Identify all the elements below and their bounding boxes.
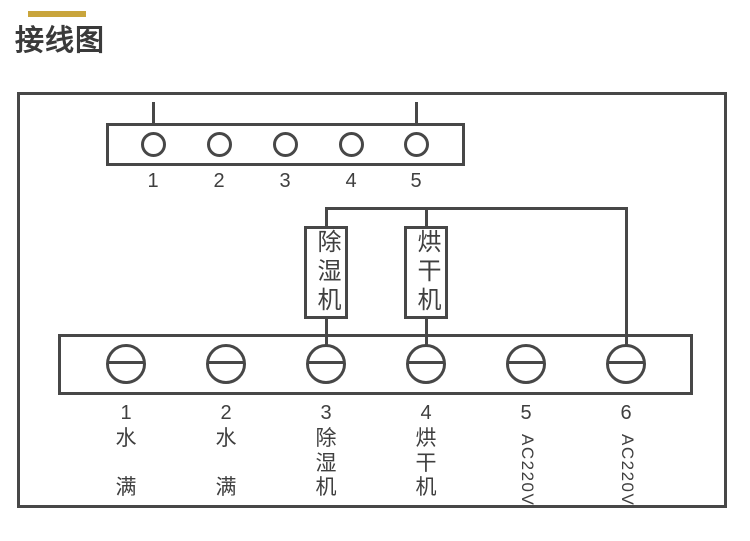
bottom-terminal-number: 4	[406, 402, 446, 425]
screw-terminal-1	[106, 344, 146, 384]
screw-slot-line	[109, 361, 143, 364]
device-box-dehumidifier: 除湿机	[304, 226, 348, 319]
top-terminal-circle-4	[339, 132, 364, 157]
page-title: 接线图	[15, 24, 105, 58]
device-wire-dehumidifier	[325, 317, 328, 347]
label-char: 满	[116, 477, 137, 498]
label-char: 机	[316, 477, 337, 498]
label-char: 满	[216, 477, 237, 498]
screw-slot-line	[509, 361, 543, 364]
screw-slot-line	[409, 361, 443, 364]
screw-terminal-4	[406, 344, 446, 384]
bottom-terminal-number: 6	[606, 402, 646, 425]
top-terminal-circle-1	[141, 132, 166, 157]
title-accent-bar	[28, 11, 86, 17]
label-char: 机	[416, 477, 437, 498]
bottom-terminal-number: 3	[306, 402, 346, 425]
device-label-dehumidifier: 除湿机	[314, 229, 338, 316]
bottom-terminal-number: 5	[506, 402, 546, 425]
bottom-terminal-label-3: 除 湿 机	[312, 428, 340, 498]
bus-wire-horizontal	[325, 207, 628, 210]
bottom-terminal-number: 2	[206, 402, 246, 425]
drop-wire-dehumidifier	[325, 207, 328, 228]
device-wire-dryer	[425, 317, 428, 347]
top-terminal-number: 5	[396, 170, 436, 193]
bottom-terminal-label-6: AC220V	[615, 428, 637, 512]
drop-wire-dryer	[425, 207, 428, 228]
top-terminal-circle-2	[207, 132, 232, 157]
screw-slot-line	[309, 361, 343, 364]
top-terminal-number: 1	[133, 170, 173, 193]
screw-slot-line	[609, 361, 643, 364]
device-label-dryer: 烘干机	[414, 229, 438, 316]
antenna-stub-terminal-5	[415, 102, 418, 124]
bottom-terminal-label-5: AC220V	[515, 428, 537, 512]
label-char: 干	[416, 453, 437, 474]
top-terminal-circle-3	[273, 132, 298, 157]
top-terminal-circle-5	[404, 132, 429, 157]
top-terminal-number: 2	[199, 170, 239, 193]
bottom-terminal-strip	[58, 334, 693, 395]
label-char: 烘	[416, 428, 437, 449]
screw-terminal-2	[206, 344, 246, 384]
top-terminal-number: 4	[331, 170, 371, 193]
drop-wire-power	[625, 207, 628, 347]
wiring-diagram-page: 接线图 1 2 3 4 5 除湿机 烘干机 1 2 3 4 5 6 水	[0, 0, 750, 541]
screw-terminal-6	[606, 344, 646, 384]
label-char: 水	[116, 428, 137, 449]
screw-slot-line	[209, 361, 243, 364]
screw-terminal-3	[306, 344, 346, 384]
label-char: 湿	[316, 453, 337, 474]
label-char: 除	[316, 428, 337, 449]
label-char: 水	[216, 428, 237, 449]
bottom-terminal-label-4: 烘 干 机	[412, 428, 440, 498]
top-terminal-number: 3	[265, 170, 305, 193]
antenna-stub-terminal-1	[152, 102, 155, 124]
bottom-terminal-label-1: 水 满	[112, 428, 140, 498]
device-box-dryer: 烘干机	[404, 226, 448, 319]
bottom-terminal-label-2: 水 满	[212, 428, 240, 498]
bottom-terminal-number: 1	[106, 402, 146, 425]
screw-terminal-5	[506, 344, 546, 384]
